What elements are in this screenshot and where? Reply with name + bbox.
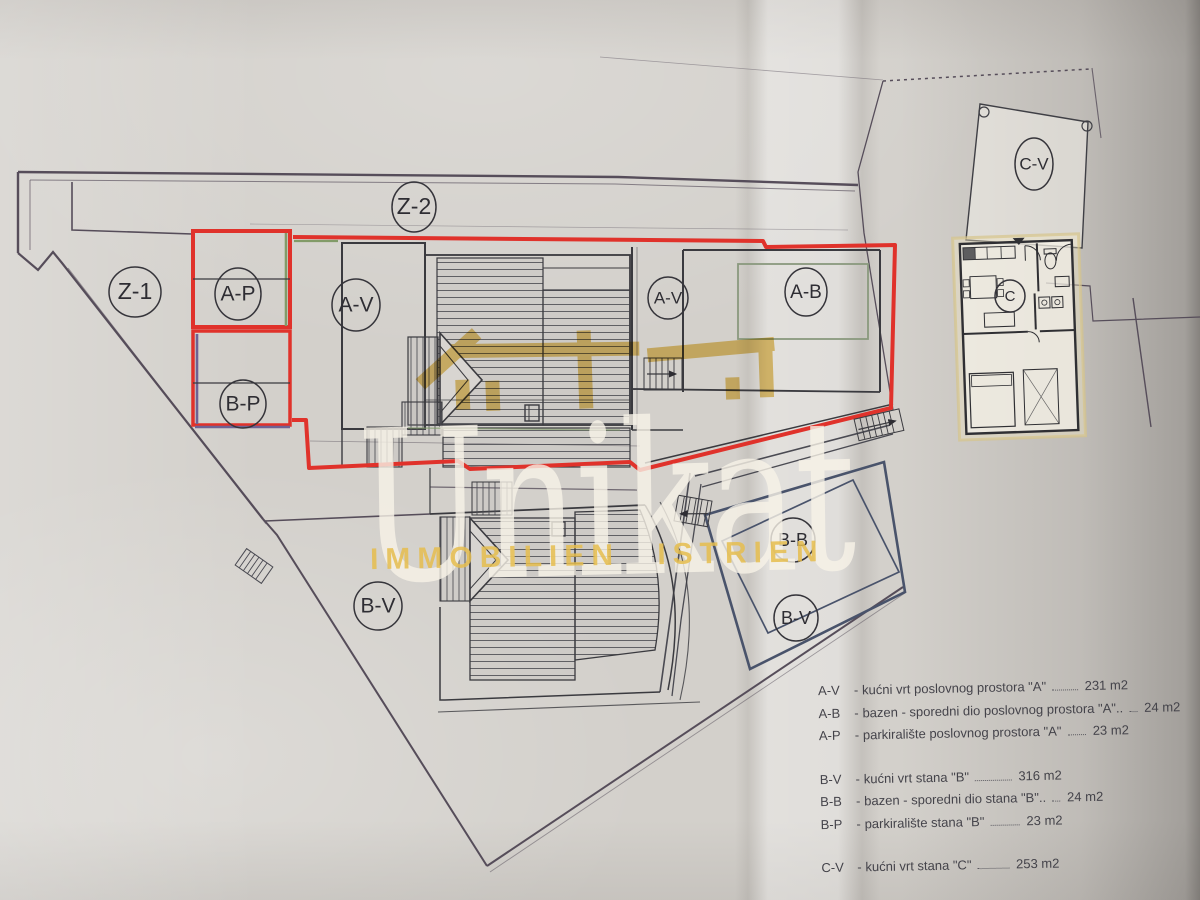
legend-code: A-B bbox=[818, 705, 850, 721]
label-av-main-text: A-V bbox=[338, 294, 373, 317]
label-ab-text: A-B bbox=[790, 282, 822, 303]
label-bv-2: B-V bbox=[774, 595, 818, 641]
legend-separator: - bbox=[850, 682, 862, 697]
legend-area: 24 m2 bbox=[1144, 699, 1180, 715]
legend-area: 23 m2 bbox=[1026, 812, 1062, 828]
legend-area: 24 m2 bbox=[1067, 789, 1103, 805]
apartment-c-floorplan bbox=[953, 234, 1086, 440]
legend-group-b: B-V-kućni vrt stana "B"316 m2 B-B-bazen … bbox=[820, 765, 1151, 839]
legend-code: A-V bbox=[818, 683, 850, 699]
legend-separator: - bbox=[853, 859, 865, 874]
legend-desc: parkiralište stana "B" bbox=[864, 814, 984, 831]
parcel-b-pool-area bbox=[705, 462, 905, 669]
legend-group-c: C-V-kućni vrt stana "C"253 m2 bbox=[821, 854, 1151, 883]
legend-desc: bazen - sporedni dio stana "B".. bbox=[864, 790, 1046, 808]
label-ap: A-P bbox=[215, 268, 261, 320]
legend-area: 316 m2 bbox=[1018, 767, 1062, 783]
scanned-site-plan-page: Z-1 Z-2 A-P B-P A-V A-V A-B C-V C B-B B-… bbox=[0, 0, 1200, 900]
legend-leader-dots bbox=[1129, 701, 1137, 712]
legend-row: C-V-kućni vrt stana "C"253 m2 bbox=[821, 856, 1059, 883]
legend-separator: - bbox=[852, 793, 864, 808]
legend-row: B-P-parkiralište stana "B"23 m2 bbox=[820, 812, 1062, 839]
legend-group-a: A-V-kućni vrt poslovnog prostora "A"231 … bbox=[818, 677, 1149, 751]
legend-area: 231 m2 bbox=[1084, 677, 1128, 693]
stove-icon bbox=[963, 247, 975, 259]
label-c-text: C bbox=[1005, 288, 1016, 305]
label-bp-text: B-P bbox=[225, 393, 260, 416]
stairs-west-corner bbox=[235, 549, 273, 584]
legend-row: A-P-parkiralište poslovnog prostora "A"2… bbox=[819, 722, 1129, 750]
legend-separator: - bbox=[850, 705, 862, 720]
legend-separator: - bbox=[852, 771, 864, 786]
legend-separator: - bbox=[851, 727, 863, 742]
legend-code: B-P bbox=[820, 816, 852, 832]
label-bv-main-text: B-V bbox=[360, 595, 395, 618]
label-z1-text: Z-1 bbox=[118, 278, 153, 304]
legend-code: B-V bbox=[820, 771, 852, 787]
label-bv-main: B-V bbox=[354, 582, 402, 630]
label-ab: A-B bbox=[785, 268, 827, 316]
legend-leader-dots bbox=[975, 770, 1011, 781]
legend-code: C-V bbox=[821, 860, 853, 876]
legend-desc: kućni vrt stana "B" bbox=[864, 769, 970, 786]
legend-separator: - bbox=[852, 816, 864, 831]
label-cv-text: C-V bbox=[1019, 154, 1049, 173]
legend-code: B-B bbox=[820, 794, 852, 810]
label-bp: B-P bbox=[220, 380, 266, 428]
legend-area: 253 m2 bbox=[1016, 856, 1060, 872]
legend-desc: kućni vrt stana "C" bbox=[865, 857, 971, 874]
legend-area: 23 m2 bbox=[1093, 722, 1129, 738]
legend-desc: kućni vrt poslovnog prostora "A" bbox=[862, 679, 1046, 698]
label-av-2-text: A-V bbox=[654, 288, 683, 307]
label-z2: Z-2 bbox=[392, 182, 436, 232]
legend-leader-dots bbox=[1067, 725, 1085, 736]
legend-leader-dots bbox=[1052, 680, 1078, 691]
plot-cv bbox=[966, 104, 1092, 248]
stairs-av2 bbox=[644, 358, 682, 390]
label-z2-text: Z-2 bbox=[397, 193, 432, 219]
legend-leader-dots bbox=[977, 858, 1009, 869]
label-bb-text: B-B bbox=[778, 530, 808, 550]
building-b bbox=[430, 468, 700, 712]
label-z1: Z-1 bbox=[109, 267, 161, 317]
label-ap-text: A-P bbox=[220, 283, 255, 306]
label-bb: B-B bbox=[771, 518, 815, 562]
legend-code: A-P bbox=[819, 728, 851, 744]
label-av-main: A-V bbox=[332, 279, 380, 331]
label-av-2: A-V bbox=[648, 277, 688, 319]
label-bv-2-text: B-V bbox=[781, 608, 811, 628]
area-legend: A-V-kućni vrt poslovnog prostora "A"231 … bbox=[818, 677, 1152, 900]
legend-leader-dots bbox=[1052, 791, 1060, 802]
legend-desc: parkiralište poslovnog prostora "A" bbox=[863, 724, 1062, 743]
legend-leader-dots bbox=[990, 814, 1019, 825]
